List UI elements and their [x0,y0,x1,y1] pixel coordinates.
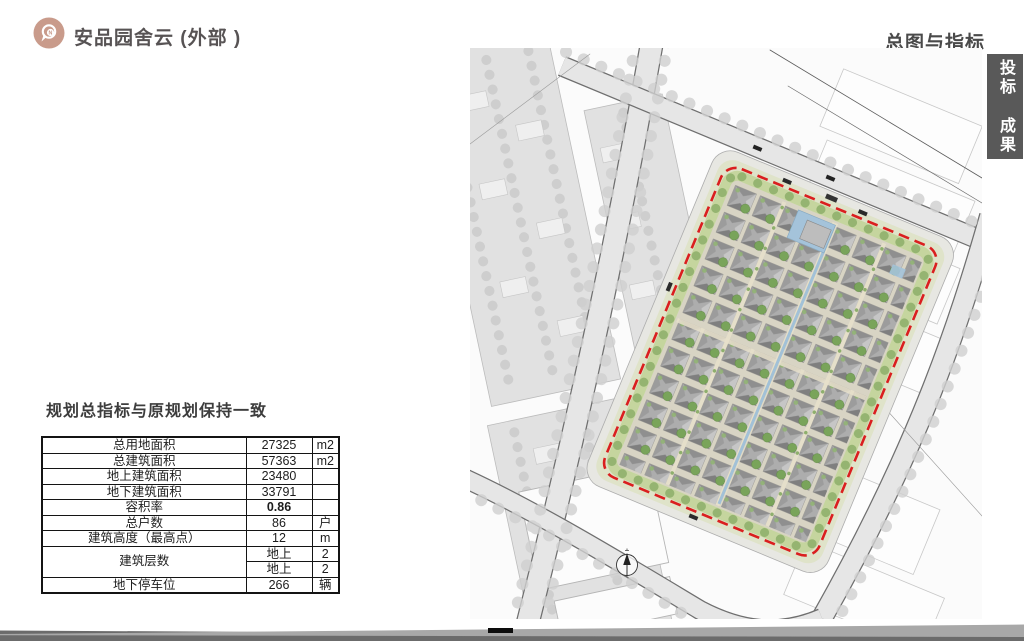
metric-value: 86 [246,515,312,531]
metric-label: 建筑层数 [42,546,246,577]
metric-value: 57363 [246,453,312,469]
table-row: 总用地面积27325m2 [42,437,339,453]
tab-bid-results[interactable]: 投标 成果 [987,54,1023,159]
metric-value: 地上 [246,546,312,562]
metric-label: 容积率 [42,500,246,516]
app-logo location-pin-icon: N [33,17,65,49]
metric-unit [312,469,339,485]
table-row: 地上建筑面积23480 [42,469,339,485]
table-row: 地下停车位266辆 [42,577,339,593]
table-row: 建筑高度（最高点）12m [42,531,339,547]
app-title: 安品园舍云 (外部 ) [74,23,241,50]
table-row: 总建筑面积57363m2 [42,453,339,469]
metric-label: 总户数 [42,515,246,531]
metric-value: 33791 [246,484,312,500]
metric-unit: 2 [312,562,339,578]
table-row: 容积率0.86 [42,500,339,516]
metric-unit: m2 [312,453,339,469]
metric-value: 地上 [246,562,312,578]
metric-unit: 户 [312,515,339,531]
metric-value: 0.86 [246,500,312,516]
metric-label: 总用地面积 [42,437,246,453]
metric-unit [312,484,339,500]
logo-badge-letter: N [49,31,53,37]
table-row: 总户数86户 [42,515,339,531]
metric-unit: m [312,531,339,547]
slide-page: N 安品园舍云 (外部 ) 总图与指标 投标 成果 [0,0,1024,641]
table-row: 地下建筑面积33791 [42,484,339,500]
metric-unit [312,500,339,516]
table-row: 建筑层数地上2 [42,546,339,562]
footer-page-marker [488,628,513,633]
metric-label: 地下停车位 [42,577,246,593]
metric-value: 266 [246,577,312,593]
metric-unit: m2 [312,437,339,453]
metric-label: 建筑高度（最高点） [42,531,246,547]
metric-unit: 2 [312,546,339,562]
site-master-plan [470,48,982,619]
metric-unit: 辆 [312,577,339,593]
table-title: 规划总指标与原规划保持一致 [46,397,267,421]
metrics-table-body: 总用地面积27325m2总建筑面积57363m2地上建筑面积23480地下建筑面… [42,437,339,593]
metric-value: 27325 [246,437,312,453]
metric-label: 地下建筑面积 [42,484,246,500]
metric-value: 23480 [246,469,312,485]
metric-value: 12 [246,531,312,547]
metric-label: 地上建筑面积 [42,469,246,485]
metric-label: 总建筑面积 [42,453,246,469]
planning-indicators-table: 总用地面积27325m2总建筑面积57363m2地上建筑面积23480地下建筑面… [41,436,340,594]
